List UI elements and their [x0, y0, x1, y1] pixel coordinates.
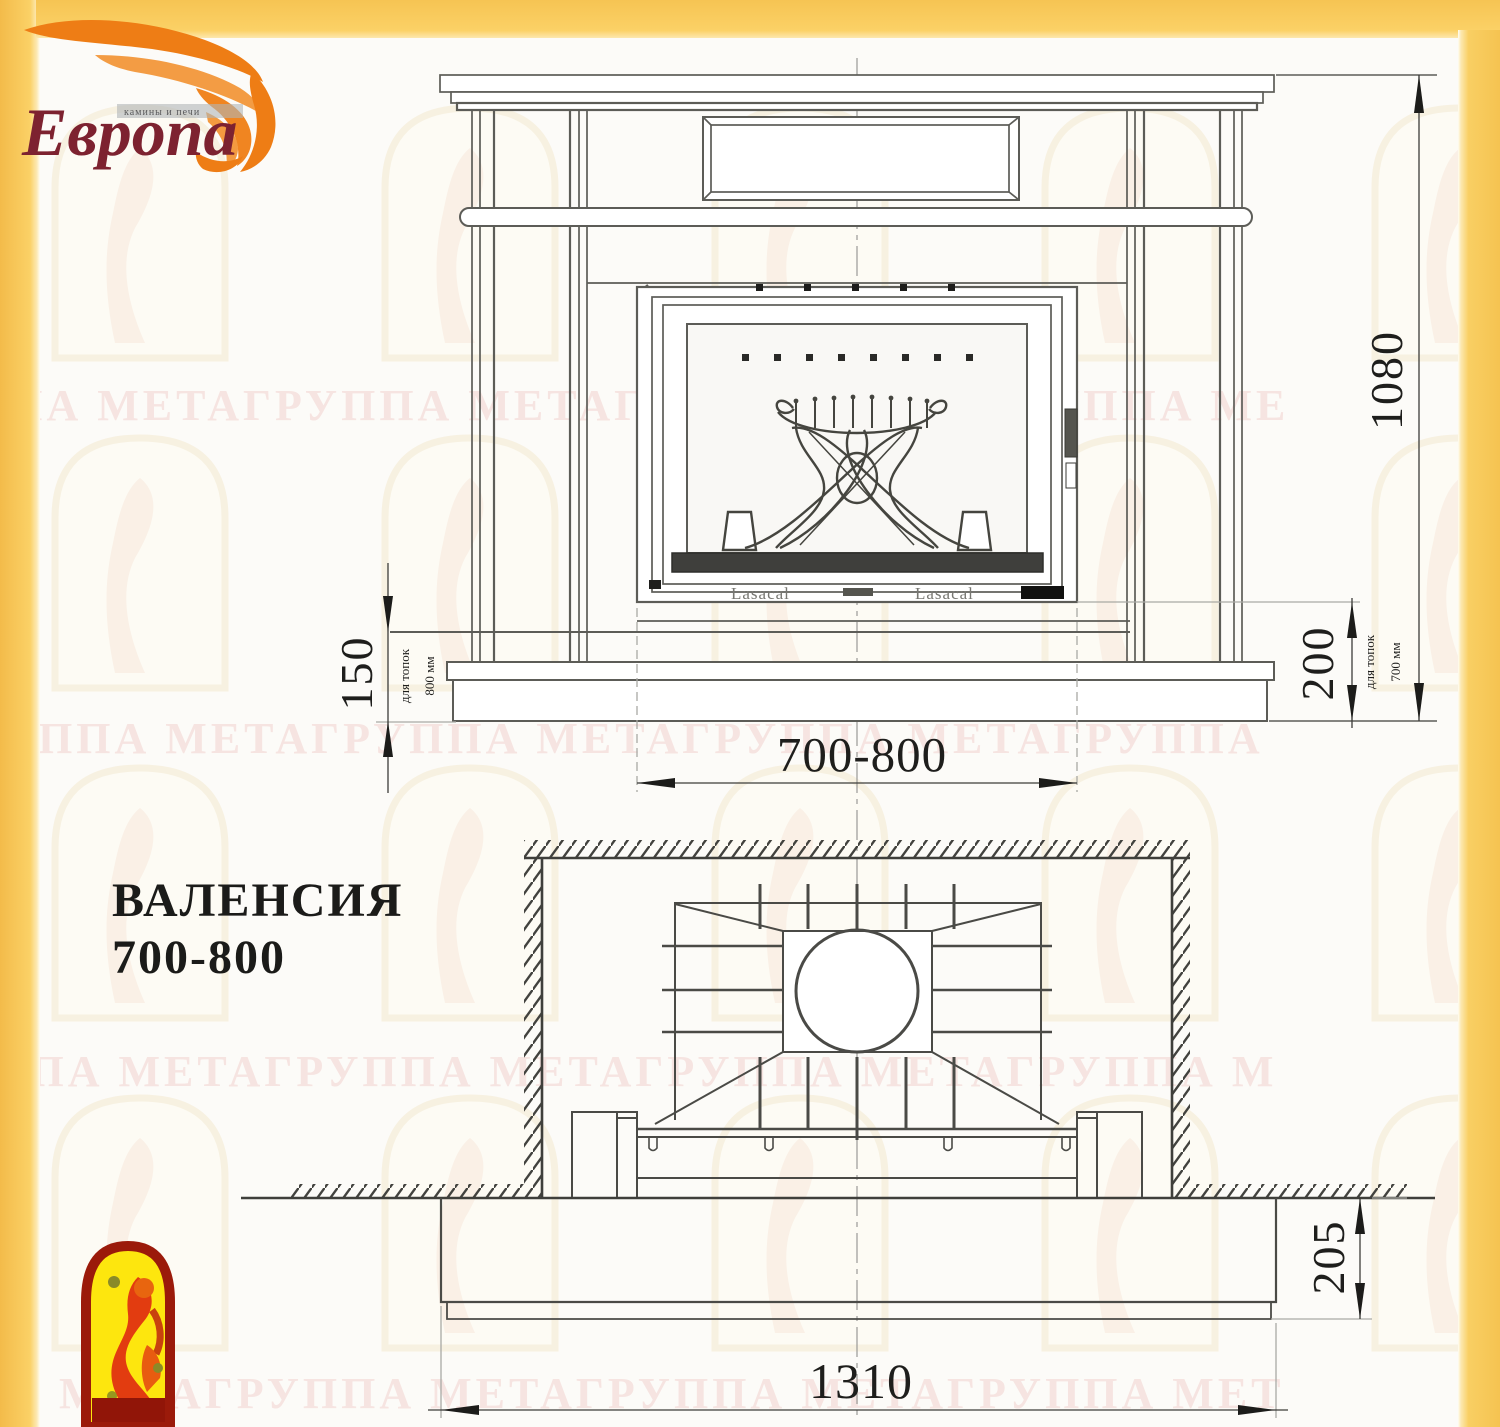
svg-text:700-800: 700-800 — [777, 727, 947, 782]
svg-text:Lasacal: Lasacal — [731, 584, 790, 603]
svg-text:700 мм: 700 мм — [1388, 642, 1403, 681]
svg-text:1080: 1080 — [1361, 330, 1412, 430]
svg-text:800 мм: 800 мм — [422, 656, 437, 695]
svg-text:Lasacal: Lasacal — [915, 584, 974, 603]
svg-text:150: 150 — [331, 636, 382, 711]
svg-text:200: 200 — [1292, 626, 1343, 701]
svg-text:для топок: для топок — [1362, 634, 1377, 689]
svg-text:для топок: для топок — [397, 648, 412, 703]
svg-text:Европа: Европа — [21, 94, 238, 170]
svg-text:1310: 1310 — [809, 1353, 913, 1409]
svg-text:УППА МЕТАГРУППА МЕТАГРУППА МЕТ: УППА МЕТАГРУППА МЕТАГРУППА МЕТАГРУППА М — [0, 1047, 1277, 1096]
svg-text:700-800: 700-800 — [112, 931, 286, 984]
svg-text:ВАЛЕНСИЯ: ВАЛЕНСИЯ — [112, 874, 403, 927]
svg-text:205: 205 — [1303, 1220, 1354, 1295]
